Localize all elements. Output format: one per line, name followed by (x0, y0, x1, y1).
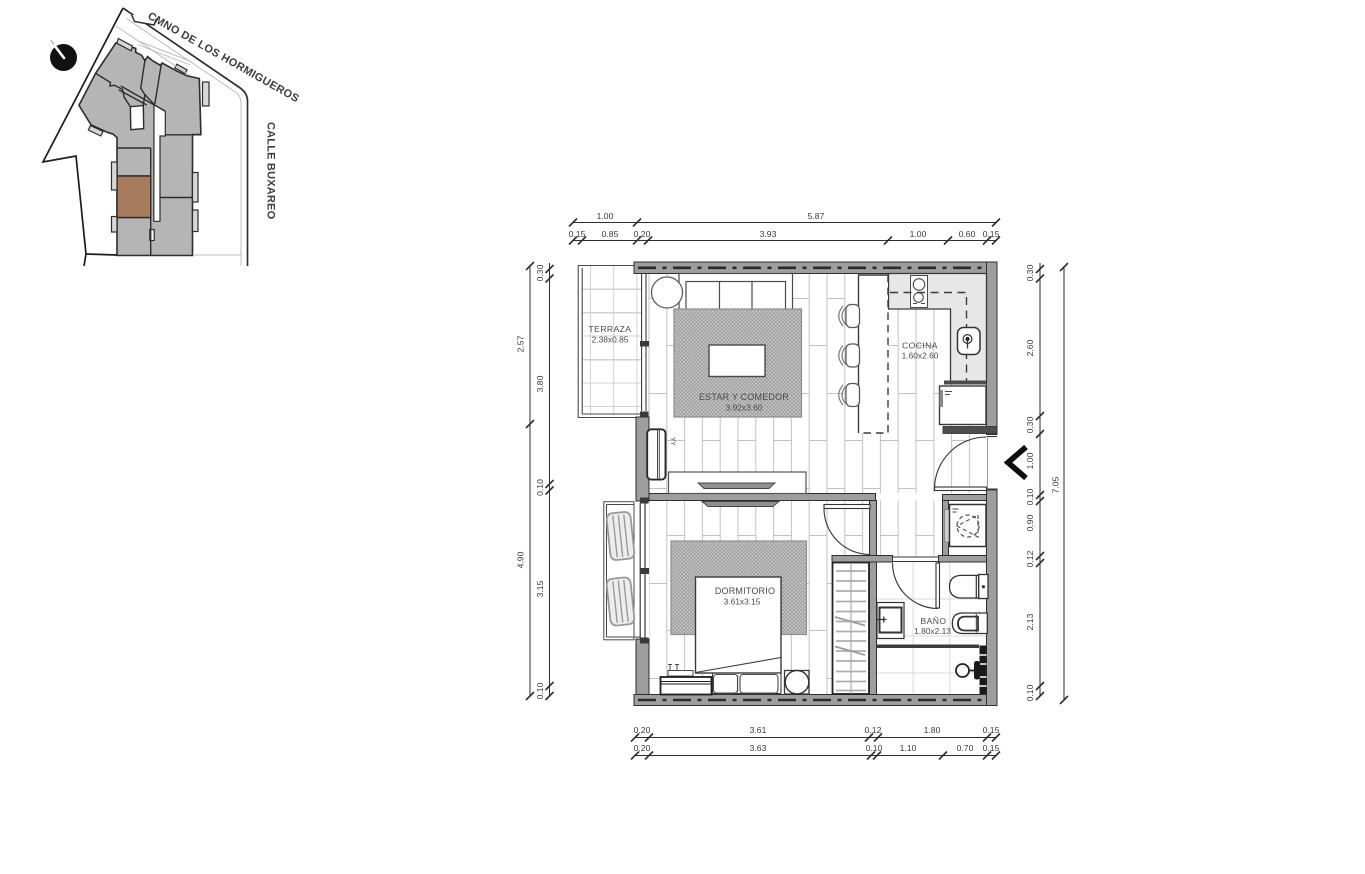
svg-text:0.30: 0.30 (1025, 264, 1035, 281)
svg-text:0.85: 0.85 (602, 229, 619, 239)
svg-text:0.70: 0.70 (957, 743, 974, 753)
svg-text:1.00: 1.00 (910, 229, 927, 239)
svg-text:CALLE BUXAREO: CALLE BUXAREO (265, 122, 277, 220)
svg-text:0.30: 0.30 (1025, 416, 1035, 433)
svg-text:0.12: 0.12 (1025, 550, 1035, 567)
svg-text:0.30: 0.30 (535, 264, 545, 281)
svg-text:0.15: 0.15 (983, 743, 1000, 753)
svg-text:0.10: 0.10 (535, 479, 545, 496)
svg-text:1.80: 1.80 (924, 725, 941, 735)
svg-text:ESTAR Y COMEDOR: ESTAR Y COMEDOR (699, 392, 789, 402)
svg-text:3.80: 3.80 (535, 375, 545, 392)
svg-text:0.15: 0.15 (983, 229, 1000, 239)
svg-text:1.80x2.13: 1.80x2.13 (914, 626, 951, 636)
svg-text:0.10: 0.10 (535, 682, 545, 699)
svg-text:TERRAZA: TERRAZA (589, 324, 632, 334)
svg-text:7.05: 7.05 (1051, 476, 1061, 493)
svg-text:DORMITORIO: DORMITORIO (715, 586, 775, 596)
svg-text:3.63: 3.63 (750, 743, 767, 753)
svg-text:2.57: 2.57 (516, 335, 526, 352)
svg-text:1.60x2.60: 1.60x2.60 (902, 351, 939, 361)
svg-text:0.10: 0.10 (1025, 684, 1035, 701)
svg-text:3.92x3.60: 3.92x3.60 (726, 403, 763, 413)
svg-text:0.10: 0.10 (1025, 488, 1035, 505)
svg-text:0.10: 0.10 (866, 743, 883, 753)
svg-text:0.60: 0.60 (959, 229, 976, 239)
svg-text:3.93: 3.93 (760, 229, 777, 239)
svg-text:0.15: 0.15 (983, 725, 1000, 735)
svg-text:5.87: 5.87 (808, 211, 825, 221)
svg-text:4.90: 4.90 (516, 551, 526, 568)
svg-text:1.00: 1.00 (1025, 452, 1035, 469)
svg-text:COCINA: COCINA (902, 341, 938, 351)
svg-text:3.15: 3.15 (535, 580, 545, 597)
svg-text:3.61x3.15: 3.61x3.15 (724, 597, 761, 607)
svg-text:0.20: 0.20 (634, 229, 651, 239)
svg-text:0.20: 0.20 (634, 725, 651, 735)
svg-text:2.60: 2.60 (1025, 339, 1035, 356)
svg-text:0.15: 0.15 (569, 229, 586, 239)
svg-text:BAÑO: BAÑO (921, 616, 947, 626)
svg-text:2.13: 2.13 (1025, 613, 1035, 630)
svg-text:2.38x0.85: 2.38x0.85 (592, 335, 629, 345)
svg-text:1.10: 1.10 (900, 743, 917, 753)
svg-text:1.00: 1.00 (597, 211, 614, 221)
svg-text:0.20: 0.20 (634, 743, 651, 753)
svg-text:YY: YY (669, 437, 676, 446)
svg-text:3.61: 3.61 (750, 725, 767, 735)
svg-text:0.90: 0.90 (1025, 514, 1035, 531)
svg-text:0.12: 0.12 (865, 725, 882, 735)
